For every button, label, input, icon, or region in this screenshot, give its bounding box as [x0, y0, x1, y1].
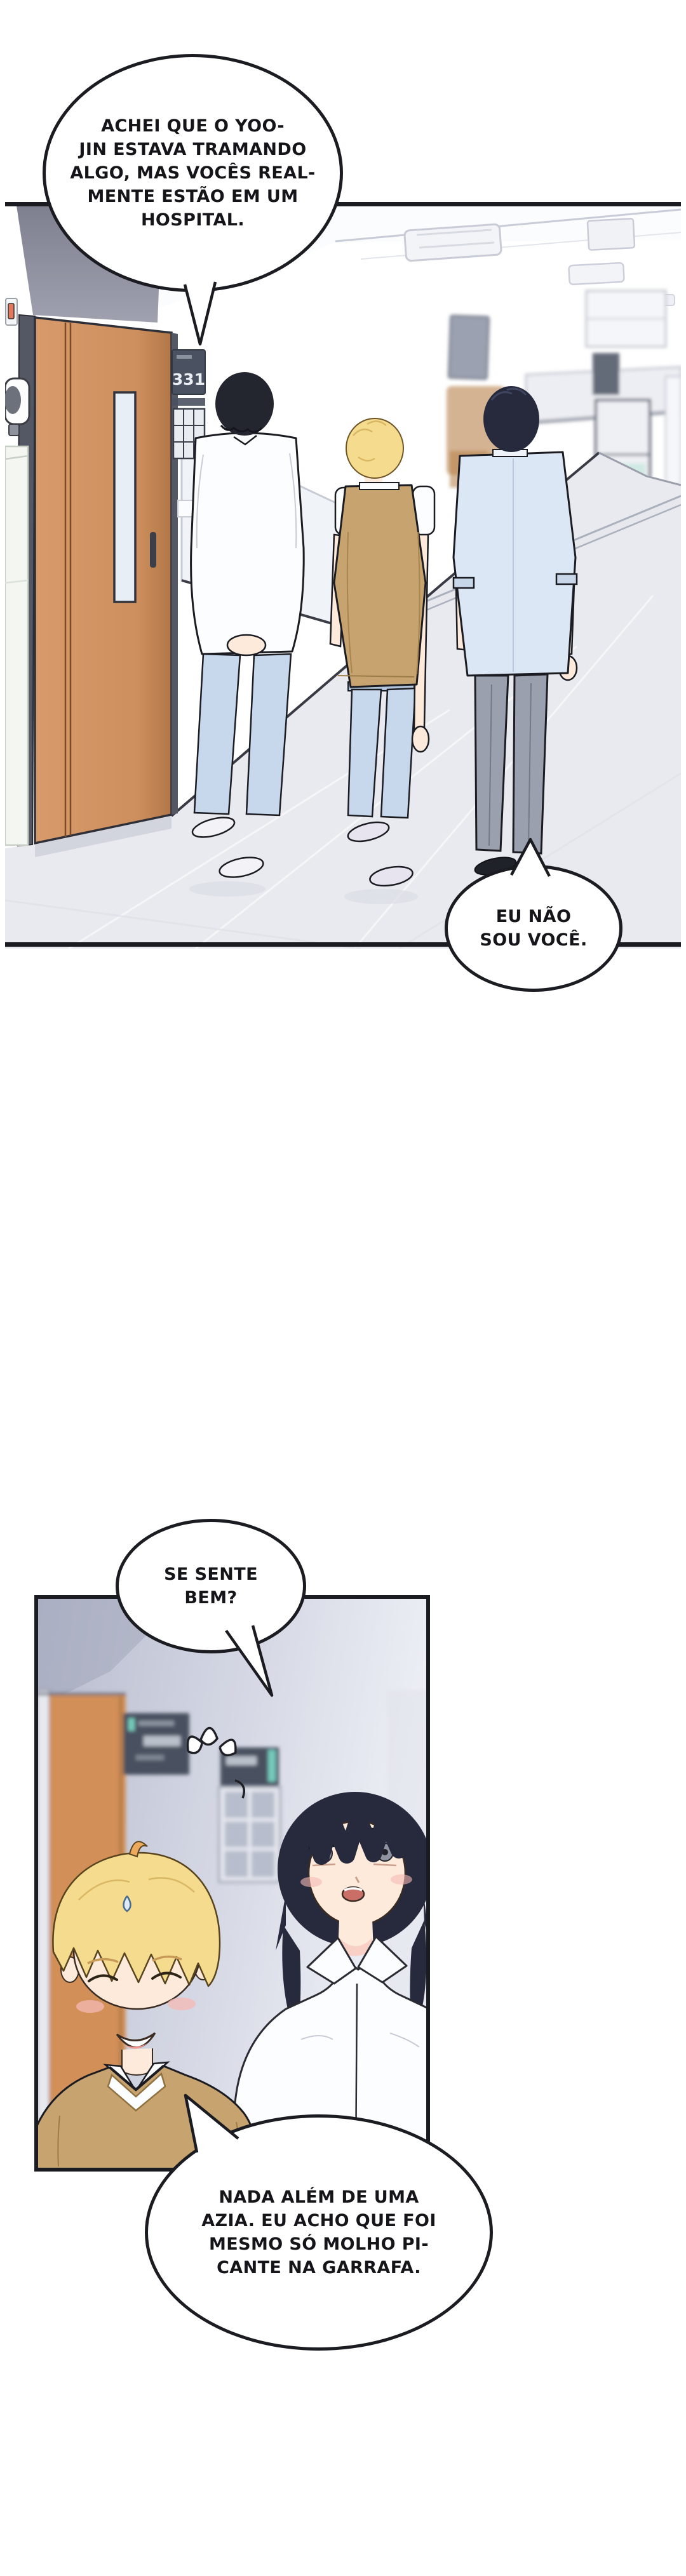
hair — [215, 372, 274, 436]
sanitizer-dispenser — [5, 378, 29, 845]
bubble-outline: ACHEI QUE O YOO- JIN ESTAVA TRAMANDO ALG… — [43, 54, 343, 292]
door-handle — [150, 532, 156, 568]
speech-bubble-hospital: ACHEI QUE O YOO- JIN ESTAVA TRAMANDO ALG… — [43, 54, 343, 292]
door-sign-window — [219, 1747, 280, 1882]
bubble-tail — [176, 273, 220, 352]
hair — [483, 386, 539, 452]
panel-corridor: 331 — [5, 202, 681, 949]
shirt — [191, 433, 304, 654]
bubble-line: SE SENTE — [164, 1563, 258, 1586]
bubble-line: HOSPITAL. — [70, 208, 315, 232]
bubble-tail — [171, 2086, 248, 2162]
rolled-cuff — [454, 578, 474, 588]
light-switch — [6, 298, 17, 325]
bubble-outline: EU NÃO SOU VOCÊ. — [445, 865, 622, 992]
comic-page: 331 — [0, 0, 686, 2576]
wall-tv — [448, 316, 488, 379]
door-sign-number: 331 — [172, 370, 205, 389]
bubble-text: ACHEI QUE O YOO- JIN ESTAVA TRAMANDO ALG… — [70, 114, 315, 232]
door-frame — [37, 1690, 50, 2172]
ceiling-light-icon — [405, 224, 502, 261]
bubble-line: JIN ESTAVA TRAMANDO — [70, 138, 315, 161]
corridor-scene: 331 — [5, 202, 681, 949]
hands-behind-back — [227, 635, 266, 655]
ceiling-sign — [588, 218, 635, 250]
bubble-line: AZIA. EU ACHO QUE FOI — [201, 2209, 436, 2232]
bubble-line: NADA ALÉM DE UMA — [201, 2186, 436, 2209]
hand — [412, 726, 429, 752]
rolled-cuff — [556, 574, 577, 584]
door-window — [114, 392, 135, 602]
bubble-line: ALGO, MAS VOCÊS REAL- — [70, 161, 315, 185]
bubble-tail — [216, 1620, 279, 1703]
neck — [122, 2048, 152, 2075]
bubble-text: NADA ALÉM DE UMA AZIA. EU ACHO QUE FOI M… — [201, 2186, 436, 2279]
speech-bubble-feel-ok: SE SENTE BEM? — [116, 1519, 306, 1653]
bubble-line: ACHEI QUE O YOO- — [70, 114, 315, 138]
bubble-tail — [505, 836, 556, 880]
hair — [346, 418, 403, 478]
bubble-line: BEM? — [164, 1586, 258, 1610]
dispenser-stand — [5, 446, 28, 845]
bubble-line: EU NÃO — [480, 905, 587, 928]
medical-equipment — [593, 353, 619, 395]
bubble-text: SE SENTE BEM? — [164, 1563, 258, 1610]
notice-board — [123, 1713, 189, 1775]
ceiling-light-icon — [568, 263, 624, 284]
bubble-line: CANTE NA GARRAFA. — [201, 2256, 436, 2279]
bubble-line: MESMO SÓ MOLHO PI- — [201, 2232, 436, 2256]
bubble-text: EU NÃO SOU VOCÊ. — [480, 905, 587, 952]
speech-bubble-heartburn: NADA ALÉM DE UMA AZIA. EU ACHO QUE FOI M… — [145, 2114, 493, 2351]
shirt — [454, 452, 575, 676]
speech-bubble-not-you: EU NÃO SOU VOCÊ. — [445, 865, 622, 992]
bubble-line: SOU VOCÊ. — [480, 928, 587, 952]
door — [35, 317, 178, 843]
bubble-line: MENTE ESTÃO EM UM — [70, 185, 315, 208]
